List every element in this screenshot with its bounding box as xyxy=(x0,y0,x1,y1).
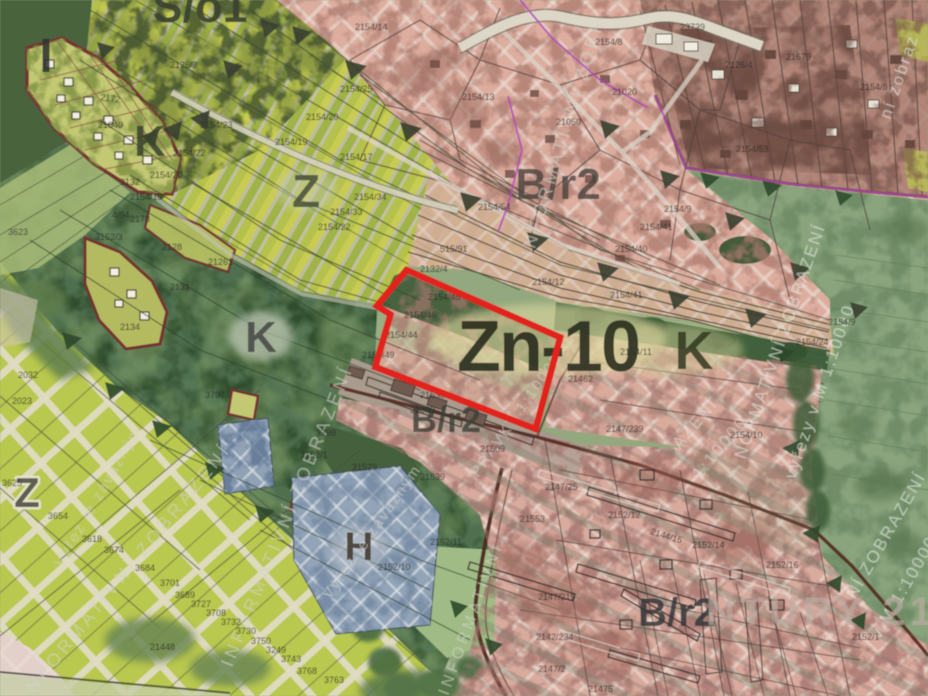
svg-text:3623: 3623 xyxy=(8,227,28,237)
svg-text:3625: 3625 xyxy=(2,478,22,488)
svg-text:21539: 21539 xyxy=(420,472,445,482)
svg-text:21475: 21475 xyxy=(588,684,613,694)
svg-text:2154/13: 2154/13 xyxy=(462,92,495,102)
svg-text:3763: 3763 xyxy=(324,675,344,685)
svg-text:2126/4: 2126/4 xyxy=(725,60,753,70)
svg-text:2154/12: 2154/12 xyxy=(532,277,565,287)
svg-text:2154/22: 2154/22 xyxy=(173,148,206,158)
svg-text:2126/3: 2126/3 xyxy=(170,60,198,70)
svg-text:21509: 21509 xyxy=(480,444,505,454)
svg-text:2154/9: 2154/9 xyxy=(664,204,692,214)
svg-text:2147/239: 2147/239 xyxy=(606,424,644,434)
svg-text:2154/41: 2154/41 xyxy=(640,222,673,232)
svg-text:2154/24: 2154/24 xyxy=(796,337,829,347)
svg-text:K: K xyxy=(245,313,277,362)
svg-text:21553: 21553 xyxy=(520,514,545,524)
svg-text:21049: 21049 xyxy=(98,120,123,130)
svg-text:2154/19: 2154/19 xyxy=(275,137,308,147)
svg-text:2154/17: 2154/17 xyxy=(340,152,373,162)
svg-text:31529: 31529 xyxy=(352,462,377,472)
svg-text:21050: 21050 xyxy=(556,117,581,127)
svg-text:2032: 2032 xyxy=(18,370,38,380)
svg-text:3152/1: 3152/1 xyxy=(300,450,328,460)
svg-text:2147/219: 2147/219 xyxy=(538,592,576,602)
svg-text:3798: 3798 xyxy=(316,428,336,438)
svg-text:I: I xyxy=(39,30,52,83)
svg-text:21679: 21679 xyxy=(786,52,811,62)
svg-text:2154/23: 2154/23 xyxy=(200,120,233,130)
svg-text:2154/20: 2154/20 xyxy=(150,170,183,180)
svg-text:2154/20: 2154/20 xyxy=(306,112,339,122)
svg-text:21462: 21462 xyxy=(568,374,593,384)
svg-text:2154/22: 2154/22 xyxy=(318,222,351,232)
svg-text:2154/8: 2154/8 xyxy=(860,82,888,92)
svg-text:2147/2: 2147/2 xyxy=(538,664,566,674)
svg-text:2152/16: 2152/16 xyxy=(766,560,799,570)
svg-text:3684: 3684 xyxy=(135,563,155,573)
svg-text:2154/46: 2154/46 xyxy=(404,310,437,320)
svg-text:2154/54: 2154/54 xyxy=(478,202,511,212)
svg-text:2131: 2131 xyxy=(170,282,190,292)
svg-text:K: K xyxy=(675,321,714,381)
svg-text:K: K xyxy=(134,117,166,166)
svg-text:3797: 3797 xyxy=(205,390,225,400)
svg-text:2154/11: 2154/11 xyxy=(620,347,652,357)
svg-text:2154/10: 2154/10 xyxy=(730,430,763,440)
svg-text:3152/3: 3152/3 xyxy=(95,232,123,242)
svg-text:2154/25: 2154/25 xyxy=(340,84,373,94)
svg-text:2154/34: 2154/34 xyxy=(354,192,387,202)
svg-text:2154/9: 2154/9 xyxy=(828,317,856,327)
svg-text:2152/10: 2152/10 xyxy=(378,562,411,572)
svg-text:21448: 21448 xyxy=(150,642,175,652)
svg-text:2142/234: 2142/234 xyxy=(536,632,574,642)
svg-text:2154/44: 2154/44 xyxy=(385,330,418,340)
svg-text:Z: Z xyxy=(292,165,320,217)
svg-text:S/o1: S/o1 xyxy=(152,0,247,32)
svg-text:2023: 2023 xyxy=(12,396,32,406)
svg-text:2154/41: 2154/41 xyxy=(610,290,643,300)
svg-text:2132/4: 2132/4 xyxy=(420,264,448,274)
svg-text:3674: 3674 xyxy=(104,545,124,555)
svg-text:2152/14: 2152/14 xyxy=(692,540,725,550)
svg-text:515/91: 515/91 xyxy=(440,244,468,254)
svg-text:21303: 21303 xyxy=(410,405,435,415)
svg-text:4/94: 4/94 xyxy=(112,210,130,220)
svg-text:Z: Z xyxy=(14,469,40,516)
svg-text:2154/8: 2154/8 xyxy=(595,37,623,47)
svg-text:2152/11: 2152/11 xyxy=(430,537,462,547)
svg-text:3768: 3768 xyxy=(297,666,317,676)
svg-text:3743: 3743 xyxy=(281,654,301,664)
svg-text:2154/33: 2154/33 xyxy=(330,207,363,217)
svg-text:3618: 3618 xyxy=(82,534,102,544)
svg-text:2147/25: 2147/25 xyxy=(545,482,578,492)
svg-text:NTURY 21: NTURY 21 xyxy=(706,590,928,634)
svg-text:2154/53: 2154/53 xyxy=(736,144,769,154)
svg-text:2152/1: 2152/1 xyxy=(852,632,880,642)
svg-text:2154/19: 2154/19 xyxy=(130,192,163,202)
svg-text:B/r2: B/r2 xyxy=(638,591,716,635)
svg-text:3730: 3730 xyxy=(236,626,256,636)
svg-text:21020: 21020 xyxy=(612,87,637,97)
svg-text:23739: 23739 xyxy=(680,22,705,32)
svg-text:2154/40: 2154/40 xyxy=(615,244,648,254)
svg-text:3654: 3654 xyxy=(48,511,68,521)
svg-text:3701: 3701 xyxy=(160,578,180,588)
svg-text:2154/14: 2154/14 xyxy=(355,22,388,32)
svg-text:21261: 21261 xyxy=(208,257,233,267)
svg-text:2128: 2128 xyxy=(162,242,182,252)
svg-text:2152/12: 2152/12 xyxy=(608,510,641,520)
svg-text:2134: 2134 xyxy=(120,322,140,332)
svg-text:2178: 2178 xyxy=(130,214,150,224)
svg-text:2132: 2132 xyxy=(120,177,140,187)
